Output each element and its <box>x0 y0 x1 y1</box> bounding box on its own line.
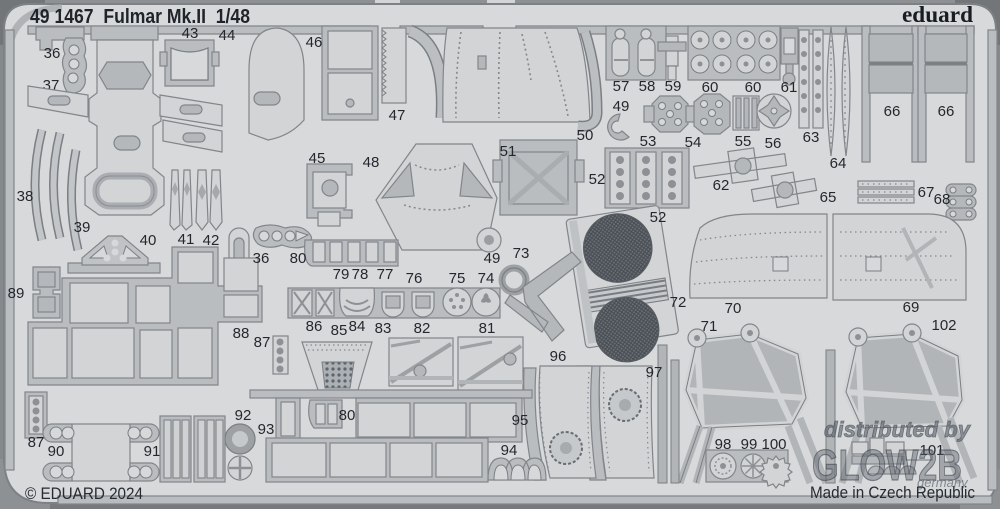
svg-text:100: 100 <box>761 436 786 453</box>
svg-text:59: 59 <box>665 78 682 95</box>
svg-text:87: 87 <box>28 434 45 451</box>
svg-text:89: 89 <box>8 285 25 302</box>
svg-text:57: 57 <box>613 78 630 95</box>
svg-text:52: 52 <box>650 209 667 226</box>
svg-text:92: 92 <box>235 407 252 424</box>
svg-text:78: 78 <box>352 266 369 283</box>
svg-text:distributed by: distributed by <box>824 417 972 442</box>
svg-text:eduard: eduard <box>902 2 973 27</box>
svg-text:77: 77 <box>377 266 394 283</box>
svg-text:102: 102 <box>931 317 956 334</box>
svg-text:94: 94 <box>501 442 518 459</box>
svg-text:84: 84 <box>349 318 366 335</box>
svg-text:germany: germany <box>917 475 969 490</box>
svg-text:63: 63 <box>803 129 820 146</box>
svg-text:97: 97 <box>646 364 663 381</box>
svg-text:36: 36 <box>253 250 270 267</box>
svg-text:44: 44 <box>219 27 236 44</box>
svg-text:49: 49 <box>484 250 501 267</box>
svg-text:71: 71 <box>701 318 718 335</box>
svg-text:36: 36 <box>44 45 61 62</box>
svg-text:41: 41 <box>178 231 195 248</box>
svg-text:99: 99 <box>741 436 758 453</box>
svg-text:80: 80 <box>290 250 307 267</box>
svg-text:© EDUARD 2024: © EDUARD 2024 <box>25 484 143 503</box>
svg-text:48: 48 <box>363 154 380 171</box>
svg-text:73: 73 <box>513 245 530 262</box>
svg-text:93: 93 <box>258 421 275 438</box>
svg-text:68: 68 <box>934 191 951 208</box>
svg-text:62: 62 <box>713 177 730 194</box>
svg-text:49: 49 <box>613 98 630 115</box>
svg-text:87: 87 <box>254 334 271 351</box>
svg-text:65: 65 <box>820 189 837 206</box>
svg-text:72: 72 <box>670 294 687 311</box>
svg-text:86: 86 <box>306 318 323 335</box>
svg-text:80: 80 <box>339 407 356 424</box>
svg-text:91: 91 <box>144 443 161 460</box>
svg-text:46: 46 <box>306 34 323 51</box>
svg-text:45: 45 <box>309 150 326 167</box>
svg-text:85: 85 <box>331 322 348 339</box>
svg-text:60: 60 <box>745 79 762 96</box>
svg-text:79: 79 <box>333 266 350 283</box>
svg-text:67: 67 <box>918 184 935 201</box>
svg-text:70: 70 <box>725 300 742 317</box>
svg-text:47: 47 <box>389 107 406 124</box>
svg-text:82: 82 <box>414 320 431 337</box>
svg-text:69: 69 <box>903 299 920 316</box>
svg-text:66: 66 <box>938 103 955 120</box>
svg-text:74: 74 <box>478 270 495 287</box>
svg-text:38: 38 <box>17 188 34 205</box>
svg-text:56: 56 <box>765 135 782 152</box>
svg-text:88: 88 <box>233 325 250 342</box>
svg-text:40: 40 <box>140 232 157 249</box>
svg-text:49 1467 Fulmar Mk.II 1/48: 49 1467 Fulmar Mk.II 1/48 <box>30 6 250 28</box>
svg-text:81: 81 <box>479 320 496 337</box>
svg-text:75: 75 <box>449 270 466 287</box>
svg-text:95: 95 <box>512 412 529 429</box>
svg-text:39: 39 <box>74 219 91 236</box>
svg-text:83: 83 <box>375 320 392 337</box>
svg-text:51: 51 <box>500 143 517 160</box>
svg-text:96: 96 <box>550 348 567 365</box>
svg-text:64: 64 <box>830 155 847 172</box>
svg-text:52: 52 <box>589 171 606 188</box>
svg-text:98: 98 <box>715 436 732 453</box>
svg-text:90: 90 <box>48 443 65 460</box>
svg-text:50: 50 <box>577 127 594 144</box>
svg-text:61: 61 <box>781 79 798 96</box>
svg-text:43: 43 <box>182 25 199 42</box>
svg-text:66: 66 <box>884 103 901 120</box>
svg-text:76: 76 <box>406 270 423 287</box>
svg-text:58: 58 <box>639 78 656 95</box>
svg-text:55: 55 <box>735 133 752 150</box>
